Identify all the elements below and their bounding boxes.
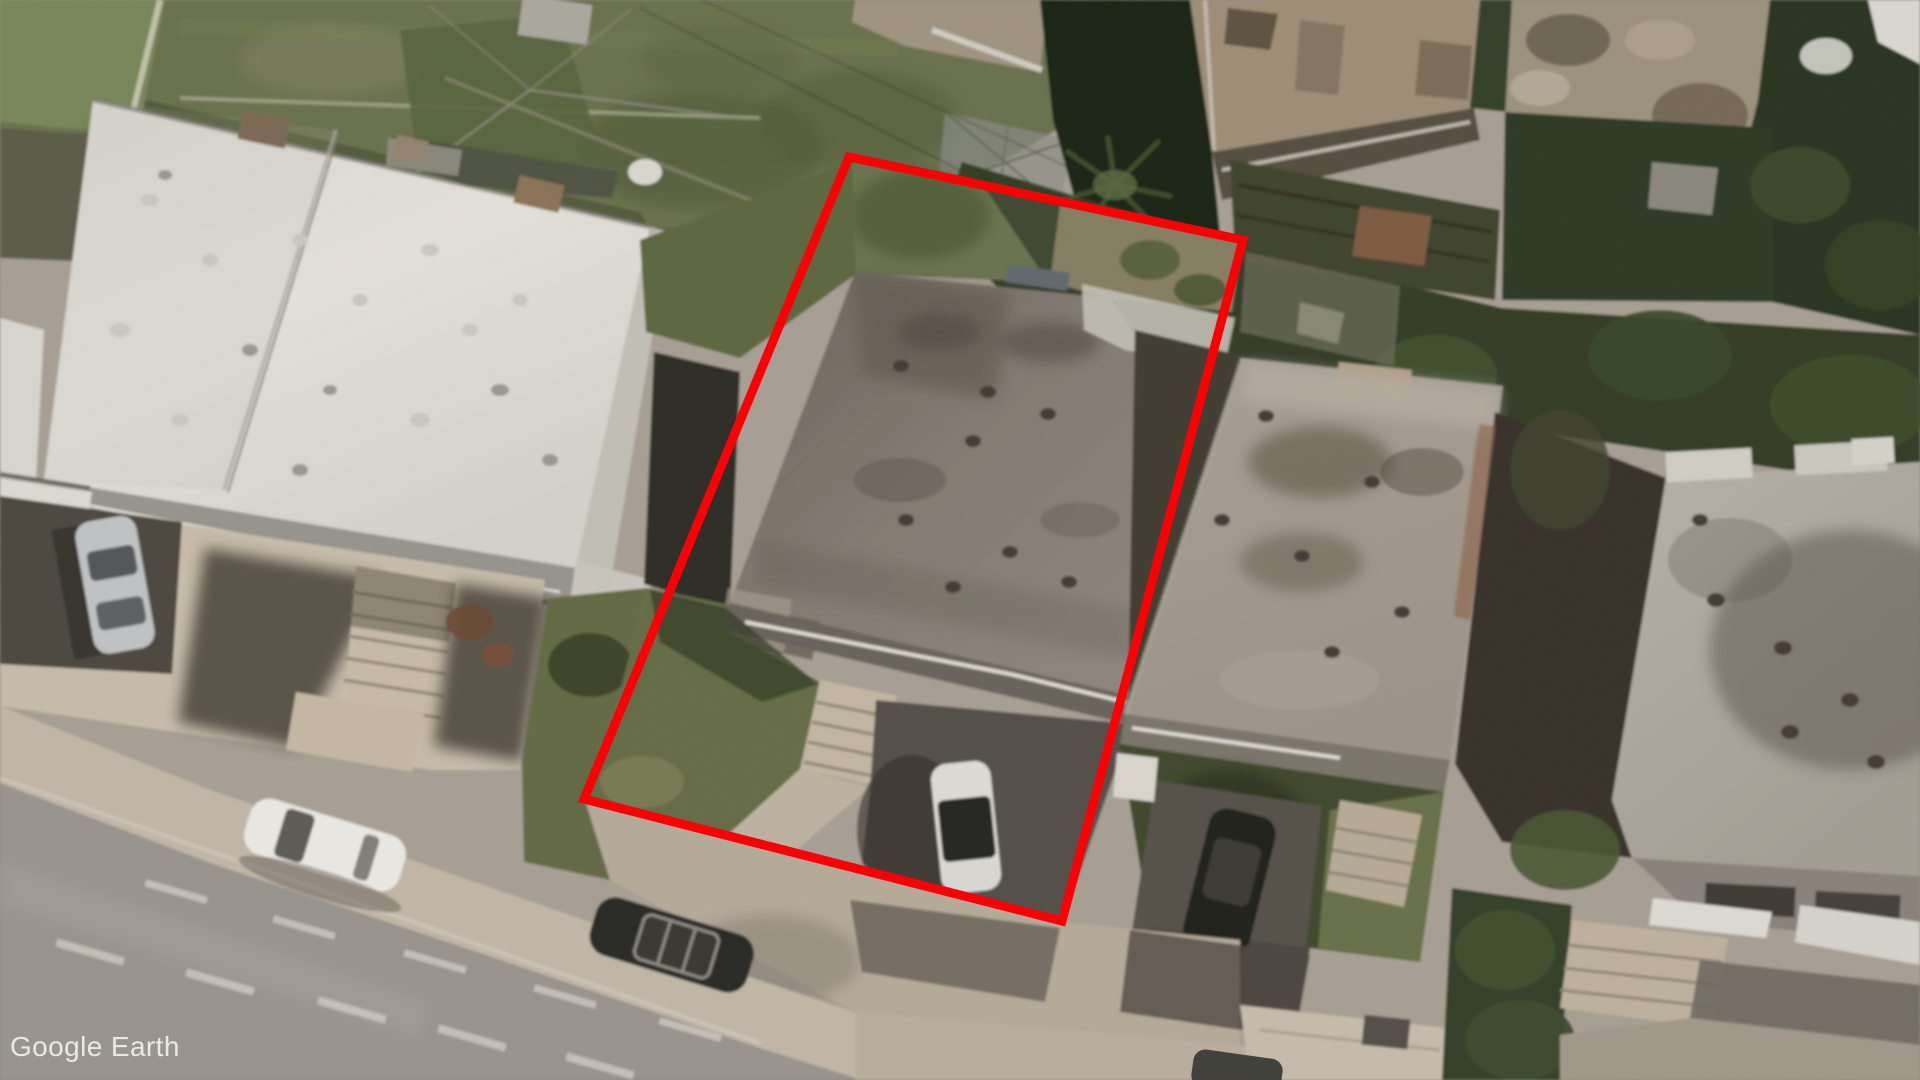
svg-text:Google Earth: Google Earth (10, 1031, 180, 1062)
